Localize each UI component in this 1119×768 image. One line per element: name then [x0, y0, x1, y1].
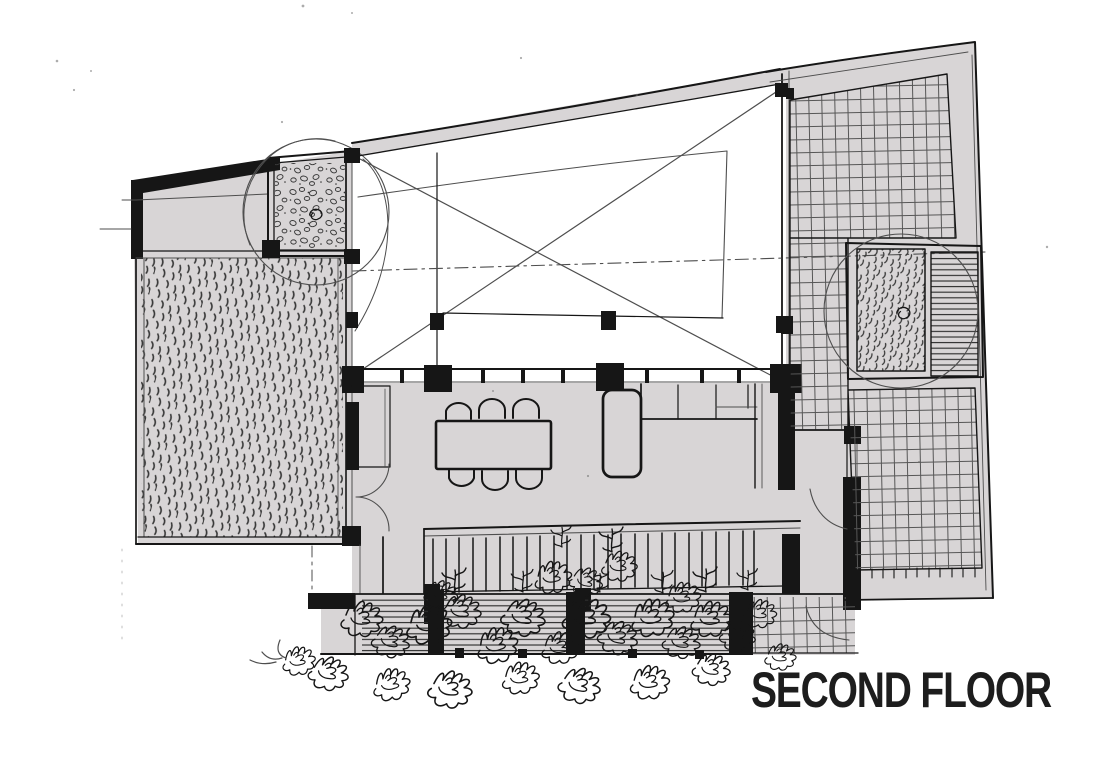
- left-wing: [100, 139, 389, 545]
- floor-plan-sheet: SECOND FLOOR: [0, 0, 1119, 768]
- floor-label: SECOND FLOOR: [751, 661, 1052, 718]
- second-floor-plan-drawing: SECOND FLOOR: [0, 0, 1119, 768]
- door-swing-arc: [355, 159, 388, 331]
- green-roof-area: [141, 258, 343, 537]
